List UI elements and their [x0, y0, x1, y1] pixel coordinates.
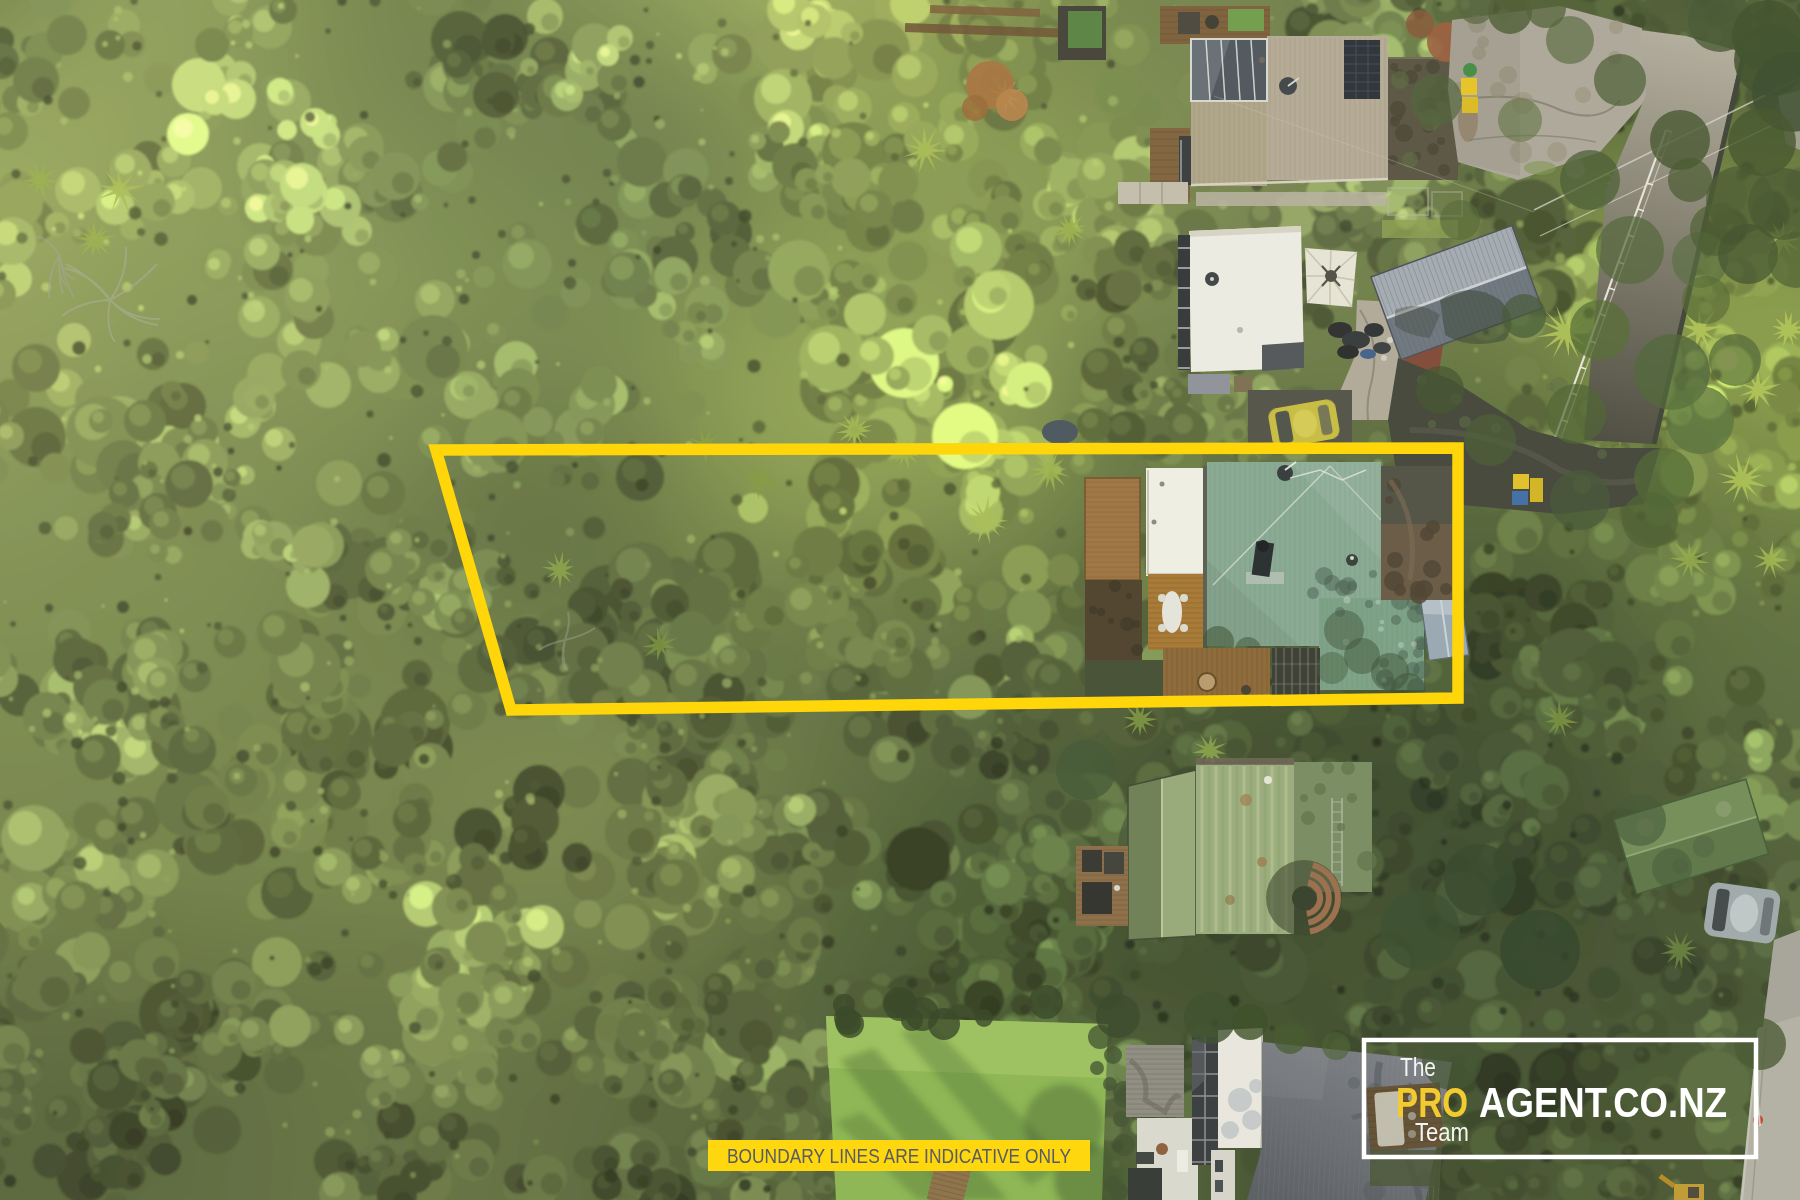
svg-text:The: The: [1400, 1053, 1436, 1081]
svg-text:AGENT.CO.NZ: AGENT.CO.NZ: [1479, 1078, 1727, 1126]
svg-text:BOUNDARY LINES ARE INDICATIVE: BOUNDARY LINES ARE INDICATIVE ONLY: [727, 1144, 1071, 1167]
svg-text:Team: Team: [1415, 1118, 1469, 1146]
